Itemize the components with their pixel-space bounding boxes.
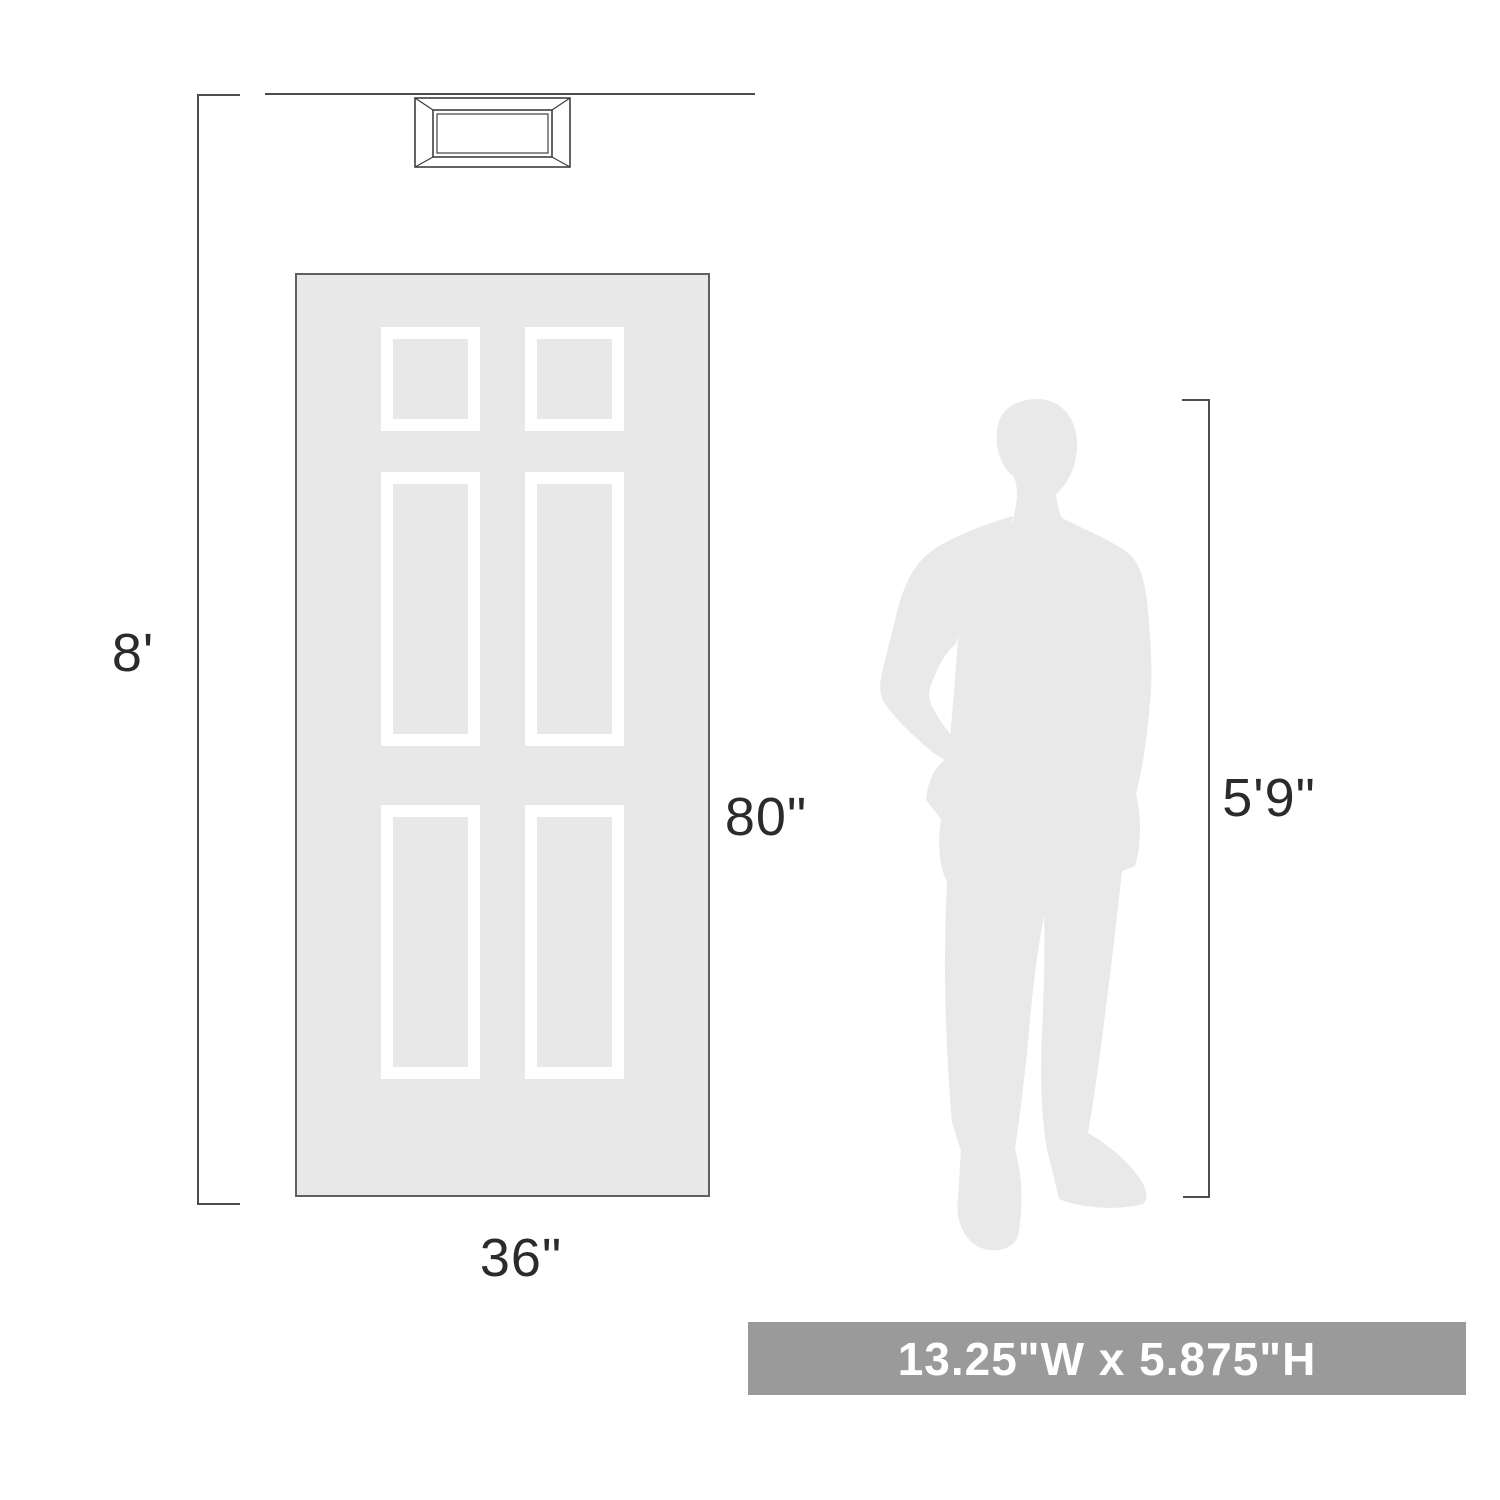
wall-height-bracket [198,95,240,1204]
door-panel-middle-right [525,472,624,746]
door-drawing [295,273,710,1197]
diagram-drawing [0,0,1500,1500]
door-panel-bottom-right [525,805,624,1079]
door-panel-top-left [381,327,480,431]
wall-height-label: 8' [112,622,154,684]
size-banner: 13.25"W x 5.875"H [748,1322,1466,1395]
door-width-label: 36" [480,1227,562,1289]
person-height-bracket [1182,400,1209,1197]
ceiling-light-fixture-icon [415,98,570,167]
door-panel-top-right [525,327,624,431]
product-dimension-diagram: 8' 80" 36" 5'9" 13.25"W x 5.875"H [0,0,1500,1500]
door-panel-middle-left [381,472,480,746]
size-banner-text: 13.25"W x 5.875"H [898,1332,1317,1386]
person-height-label: 5'9" [1222,767,1316,829]
door-panel-bottom-left [381,805,480,1079]
person-silhouette [926,399,1151,1250]
door-height-label: 80" [725,786,807,848]
